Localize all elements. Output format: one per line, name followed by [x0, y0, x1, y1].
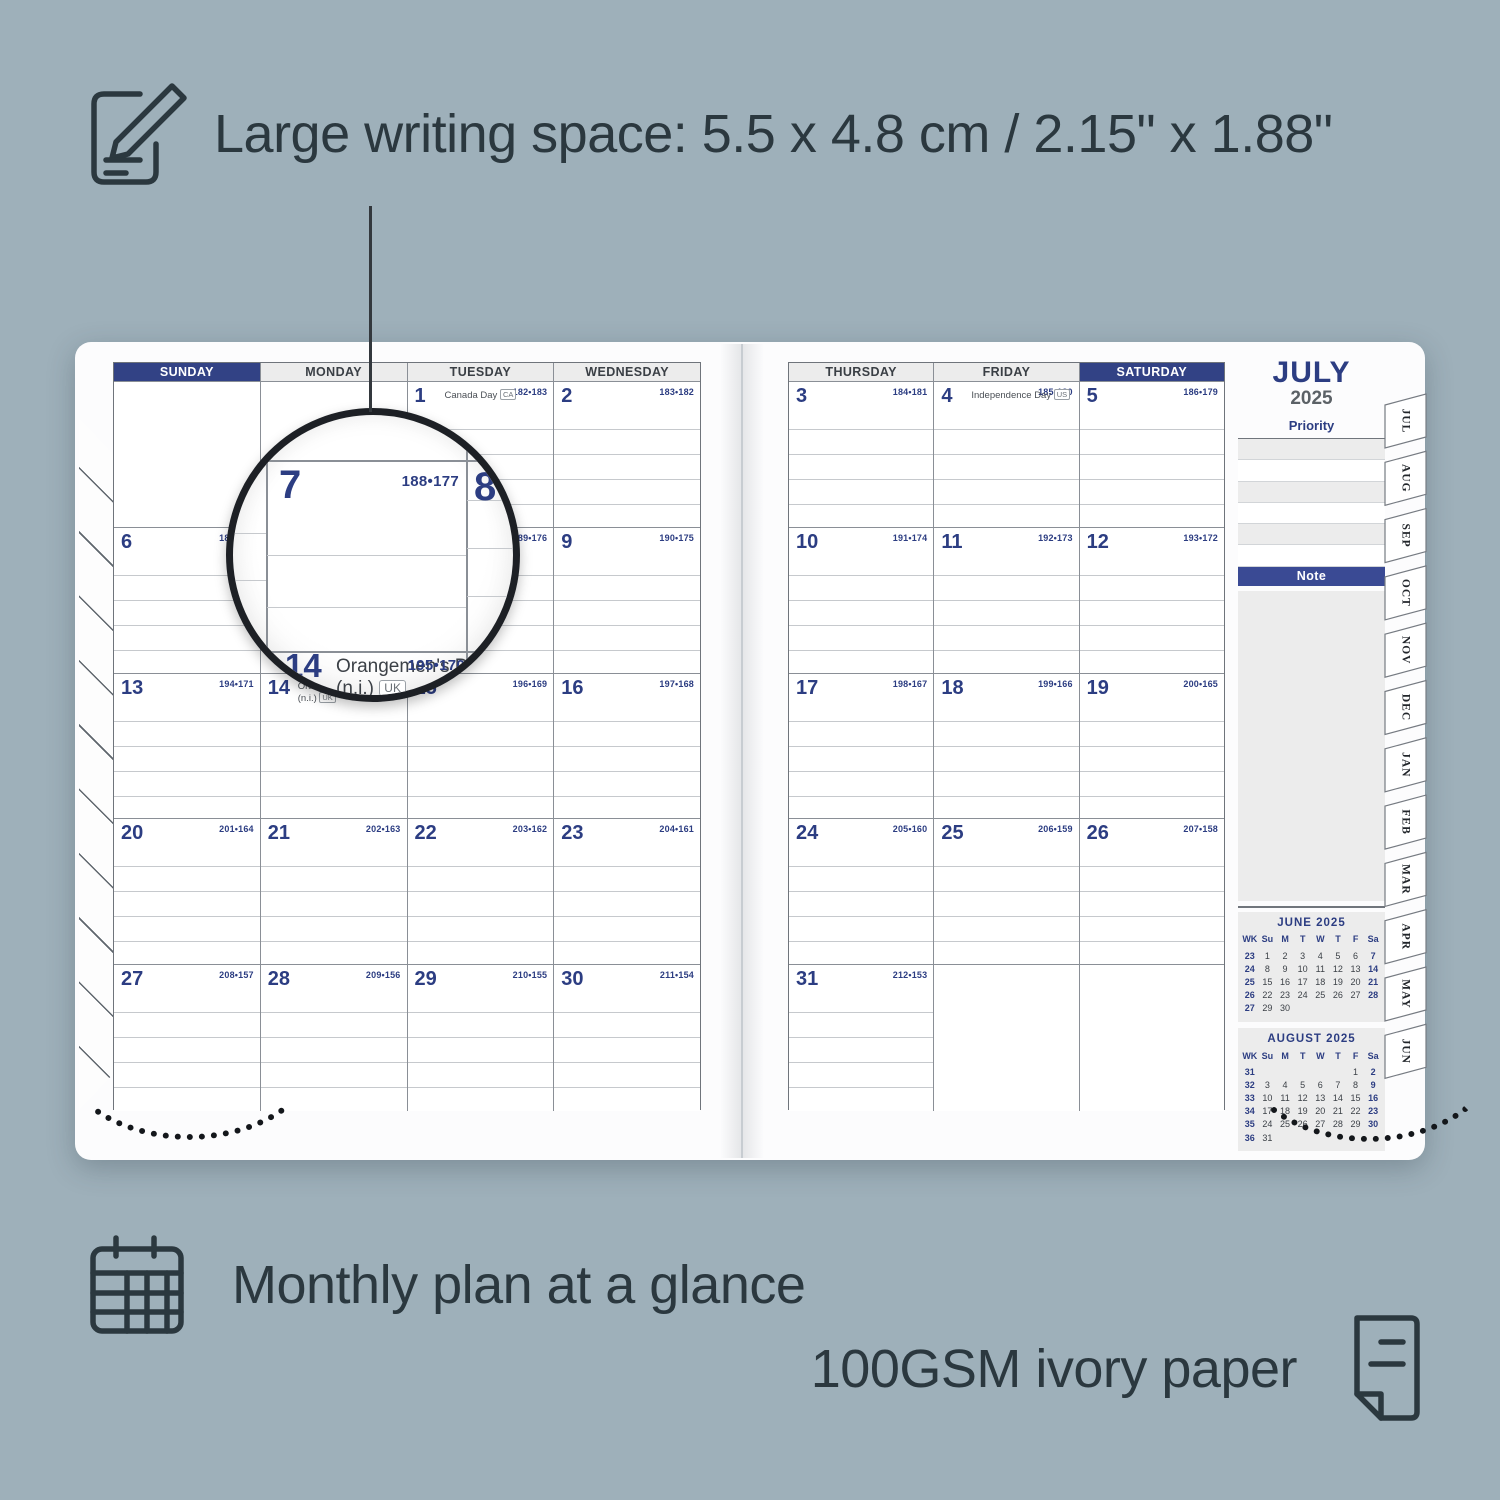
- day-of-year: 212•153: [893, 970, 928, 980]
- rule-line: [934, 429, 1078, 430]
- date-number: 24: [796, 822, 818, 845]
- rule-line: [114, 625, 260, 626]
- day-cell: 5186•179: [1080, 382, 1224, 527]
- rule-line: [789, 1087, 933, 1088]
- week-row: 20201•16421202•16322203•16223204•161: [114, 819, 700, 965]
- priority-line: [1238, 545, 1385, 566]
- mini-header-cell: Sa: [1364, 933, 1382, 946]
- grid-line: [233, 651, 513, 653]
- month-tab-label: DEC: [1399, 694, 1411, 721]
- calendar-grid-icon: [86, 1232, 188, 1338]
- day-cell: 2183•182: [554, 382, 700, 527]
- date-number: 4: [941, 385, 952, 408]
- rule-line: [934, 891, 1078, 892]
- magnified-date-14: 14: [285, 647, 322, 685]
- mini-header-cell: WK: [1241, 933, 1259, 946]
- rule-line: [789, 600, 933, 601]
- day-of-year: 199•166: [1038, 679, 1073, 689]
- stitch-decoration-right: [1238, 960, 1500, 1142]
- weekday-header: SUNDAY: [114, 363, 261, 381]
- rule-line: [934, 866, 1078, 867]
- country-badge: UK: [379, 680, 406, 696]
- week-number: 24: [1241, 962, 1259, 975]
- magnified-date-7: 7: [279, 463, 301, 508]
- rule-line: [934, 504, 1078, 505]
- rule-line: [789, 650, 933, 651]
- date-number: 2: [561, 385, 572, 408]
- rule-line: [114, 721, 260, 722]
- rule-line: [789, 916, 933, 917]
- rule-line: [554, 625, 700, 626]
- annotation-top: Large writing space: 5.5 x 4.8 cm / 2.15…: [88, 80, 1332, 188]
- date-number: 18: [941, 677, 963, 700]
- rule-line: [261, 721, 407, 722]
- rule-line: [554, 504, 700, 505]
- rule-line: [934, 650, 1078, 651]
- mini-calendar-title: JUNE 2025: [1241, 917, 1382, 929]
- week-row: 10191•17411192•17312193•172: [789, 528, 1224, 674]
- rule-line: [114, 796, 260, 797]
- rule-line: [554, 941, 700, 942]
- day-cell: 11192•173: [934, 528, 1079, 673]
- week-number: 36: [1241, 1131, 1259, 1144]
- date-number: 30: [561, 968, 583, 991]
- day-of-year: 202•163: [366, 824, 401, 834]
- day-cell: 4185•180Independence Day US: [934, 382, 1079, 527]
- rule-line: [554, 1037, 700, 1038]
- month-tab-label: JUL: [1399, 409, 1411, 434]
- rule-line: [408, 1062, 554, 1063]
- magnified-doy-14: 195•170: [408, 657, 465, 674]
- rule-line: [789, 429, 933, 430]
- date-number: 5: [1087, 385, 1098, 408]
- day-of-year: 186•179: [1183, 387, 1218, 397]
- day-cell: 24205•160: [789, 819, 934, 964]
- date-number: 3: [796, 385, 807, 408]
- rule-line: [267, 555, 466, 556]
- rule-line: [789, 625, 933, 626]
- note-header: Note: [1238, 567, 1385, 586]
- day-cell: 15196•169: [408, 674, 555, 819]
- month-tab-label: FEB: [1399, 809, 1411, 834]
- rule-line: [934, 625, 1078, 626]
- rule-line: [1080, 575, 1224, 576]
- mini-header-cell: T: [1294, 933, 1312, 946]
- rule-line: [789, 721, 933, 722]
- day-of-year: 206•159: [1038, 824, 1073, 834]
- day-cell: 18199•166: [934, 674, 1079, 819]
- date-number: 10: [796, 531, 818, 554]
- day-of-year: 205•160: [893, 824, 928, 834]
- date-number: 6: [121, 531, 132, 554]
- note-area: [1238, 591, 1385, 901]
- rule-line: [408, 916, 554, 917]
- day-of-year: 210•155: [513, 970, 548, 980]
- mini-header-cell: M: [1276, 933, 1294, 946]
- priority-line: [1238, 460, 1385, 481]
- weekday-header: SATURDAY: [1080, 363, 1224, 381]
- rule-line: [1080, 796, 1224, 797]
- week-number: 34: [1241, 1105, 1259, 1118]
- month-title: JULY: [1238, 356, 1385, 390]
- date-number: 31: [796, 968, 818, 991]
- day-of-year: 191•174: [893, 533, 928, 543]
- day-cell: 10191•174: [789, 528, 934, 673]
- day-cell: [1080, 965, 1224, 1111]
- day-of-year: 196•169: [513, 679, 548, 689]
- date-number: 12: [1087, 531, 1109, 554]
- rule-line: [934, 721, 1078, 722]
- day-of-year: 194•171: [219, 679, 254, 689]
- stitch-decoration-left: [58, 963, 320, 1140]
- rule-line: [554, 1012, 700, 1013]
- rule-line: [408, 796, 554, 797]
- day-cell: 20201•164: [114, 819, 261, 964]
- rule-line: [1080, 771, 1224, 772]
- day-cell: 23204•161: [554, 819, 700, 964]
- day-of-year: 192•173: [1038, 533, 1073, 543]
- rule-line: [467, 596, 513, 597]
- day-cell: 21202•163: [261, 819, 408, 964]
- rule-line: [789, 575, 933, 576]
- day-of-year: 201•164: [219, 824, 254, 834]
- rule-line: [554, 1062, 700, 1063]
- rule-line: [408, 771, 554, 772]
- weekday-header: TUESDAY: [408, 363, 555, 381]
- day-cell: 25206•159: [934, 819, 1079, 964]
- rule-line: [408, 1087, 554, 1088]
- priority-line: [1238, 524, 1385, 545]
- country-badge: CA: [500, 389, 516, 400]
- rule-line: [554, 746, 700, 747]
- rule-line: [554, 454, 700, 455]
- date-number: 9: [561, 531, 572, 554]
- month-tab-label: MAR: [1399, 864, 1411, 894]
- spine-line: [741, 344, 743, 1158]
- rule-line: [114, 771, 260, 772]
- rule-line: [233, 533, 266, 534]
- mini-header-cell: Su: [1259, 933, 1277, 946]
- weekday-header: FRIDAY: [934, 363, 1079, 381]
- day-cell: 19200•165: [1080, 674, 1224, 819]
- week-number: 23: [1241, 949, 1259, 962]
- day-of-year: 197•168: [659, 679, 694, 689]
- day-of-year: 211•154: [660, 970, 694, 980]
- rule-line: [261, 866, 407, 867]
- rule-line: [1080, 721, 1224, 722]
- date-number: 22: [415, 822, 437, 845]
- day-cell: 30211•154: [554, 965, 700, 1111]
- rule-line: [408, 891, 554, 892]
- rule-line: [789, 1062, 933, 1063]
- rule-line: [934, 941, 1078, 942]
- priority-line: [1238, 482, 1385, 503]
- rule-line: [408, 721, 554, 722]
- holiday-label: Independence Day US: [971, 389, 1070, 401]
- day-cell: 29210•155: [408, 965, 555, 1111]
- mini-header-cell: T: [1329, 933, 1347, 946]
- month-tab-label: OCT: [1399, 579, 1411, 607]
- rule-line: [408, 941, 554, 942]
- day-cell: 12193•172: [1080, 528, 1224, 673]
- day-of-year: 207•158: [1183, 824, 1218, 834]
- date-number: 23: [561, 822, 583, 845]
- magnified-doy-7: 188•177: [402, 473, 459, 490]
- magnifier-circle: 78 7 188•177 8 14 Orangemen's Day (n.i.)…: [226, 408, 520, 702]
- rule-line: [554, 650, 700, 651]
- rule-line: [408, 866, 554, 867]
- week-row: 17198•16718199•16619200•165: [789, 674, 1224, 820]
- divider: [1238, 906, 1385, 908]
- weekday-header: THURSDAY: [789, 363, 934, 381]
- paper-sheet-icon: [1335, 1312, 1427, 1426]
- day-of-year: 203•162: [513, 824, 548, 834]
- magnified-holiday-note: (n.i.) UK: [336, 678, 406, 700]
- rule-line: [789, 891, 933, 892]
- month-tab-label: JAN: [1399, 752, 1411, 777]
- date-number: 17: [796, 677, 818, 700]
- country-badge: US: [1054, 389, 1070, 400]
- mini-day: 9: [1276, 962, 1294, 975]
- rule-line: [1080, 600, 1224, 601]
- rule-line: [114, 941, 260, 942]
- rule-line: [1080, 429, 1224, 430]
- day-of-year: 190•175: [659, 533, 694, 543]
- mini-day: 4: [1312, 949, 1330, 962]
- rule-line: [267, 607, 466, 608]
- date-number: 13: [121, 677, 143, 700]
- rule-line: [408, 746, 554, 747]
- mini-header-cell: F: [1347, 933, 1365, 946]
- rule-line: [261, 796, 407, 797]
- mini-day: 5: [1329, 949, 1347, 962]
- rule-line: [554, 891, 700, 892]
- rule-line: [789, 454, 933, 455]
- date-number: 29: [415, 968, 437, 991]
- annotation-bottom-right-text: 100GSM ivory paper: [811, 1338, 1297, 1400]
- rule-line: [789, 1012, 933, 1013]
- annotation-bottom-right: 100GSM ivory paper: [811, 1312, 1427, 1426]
- annotation-top-text: Large writing space: 5.5 x 4.8 cm / 2.15…: [214, 103, 1332, 165]
- rule-line: [1080, 625, 1224, 626]
- month-tab-label: APR: [1399, 923, 1411, 950]
- ni-label: (n.i.): [336, 678, 374, 699]
- day-of-year: 184•181: [893, 387, 928, 397]
- weekday-header-row: SUNDAYMONDAYTUESDAYWEDNESDAY: [114, 363, 700, 382]
- grid-line: [466, 415, 468, 695]
- annotation-bottom-left-text: Monthly plan at a glance: [232, 1254, 805, 1316]
- mini-calendar-header: WKSuMTWTFSa: [1241, 933, 1382, 946]
- date-number: 25: [941, 822, 963, 845]
- rule-line: [1080, 504, 1224, 505]
- date-number: 16: [561, 677, 583, 700]
- rule-line: [554, 771, 700, 772]
- year-label: 2025: [1238, 388, 1385, 410]
- mini-day: 8: [1259, 962, 1277, 975]
- rule-line: [1080, 650, 1224, 651]
- rule-line: [934, 796, 1078, 797]
- priority-line: [1238, 503, 1385, 524]
- rule-line: [789, 479, 933, 480]
- rule-line: [1080, 941, 1224, 942]
- rule-line: [114, 746, 260, 747]
- rule-line: [1080, 479, 1224, 480]
- date-number: 20: [121, 822, 143, 845]
- mini-day: 24: [1259, 1118, 1277, 1131]
- date-number: 21: [268, 822, 290, 845]
- mini-day: 2: [1276, 949, 1294, 962]
- day-cell: 3184•181: [789, 382, 934, 527]
- day-of-year: 193•172: [1183, 533, 1218, 543]
- mini-day: 15: [1259, 975, 1277, 988]
- week-number: 26: [1241, 989, 1259, 1002]
- rule-line: [789, 796, 933, 797]
- date-number: 11: [941, 531, 962, 554]
- rule-line: [233, 580, 266, 581]
- day-cell: 17198•167: [789, 674, 934, 819]
- rule-line: [789, 941, 933, 942]
- rule-line: [554, 1087, 700, 1088]
- month-tab-label: AUG: [1399, 464, 1411, 493]
- day-cell: 13194•171: [114, 674, 261, 819]
- rule-line: [934, 479, 1078, 480]
- day-of-year: 209•156: [366, 970, 401, 980]
- rule-line: [554, 721, 700, 722]
- rule-line: [789, 771, 933, 772]
- rule-line: [554, 429, 700, 430]
- leader-line: [369, 206, 372, 412]
- day-cell: 22203•162: [408, 819, 555, 964]
- date-number: 19: [1087, 677, 1109, 700]
- week-number: 35: [1241, 1118, 1259, 1131]
- calendar-right-page: THURSDAYFRIDAYSATURDAY3184•1814185•180In…: [788, 362, 1225, 1110]
- rule-line: [934, 600, 1078, 601]
- grid-line: [233, 460, 513, 462]
- rule-line: [554, 575, 700, 576]
- rule-line: [1080, 866, 1224, 867]
- day-cell: 31212•153: [789, 965, 934, 1111]
- rule-line: [261, 891, 407, 892]
- rule-line: [554, 916, 700, 917]
- rule-line: [554, 479, 700, 480]
- rule-line: [554, 866, 700, 867]
- mini-day: [1276, 1131, 1294, 1144]
- rule-line: [114, 866, 260, 867]
- rule-line: [1080, 746, 1224, 747]
- day-of-year-fragment: 78: [235, 471, 249, 486]
- rule-line: [261, 771, 407, 772]
- day-of-year: 200•165: [1183, 679, 1218, 689]
- rule-line: [789, 1037, 933, 1038]
- week-row: 31212•153: [789, 965, 1224, 1111]
- weekday-header: WEDNESDAY: [554, 363, 700, 381]
- mini-day: 1: [1259, 949, 1277, 962]
- mini-day: [1294, 1131, 1312, 1144]
- day-cell: 26207•158: [1080, 819, 1224, 964]
- weekday-header-row: THURSDAYFRIDAYSATURDAY: [789, 363, 1224, 382]
- rule-line: [408, 1012, 554, 1013]
- mini-header-cell: W: [1312, 933, 1330, 946]
- day-cell: 16197•168: [554, 674, 700, 819]
- rule-line: [789, 866, 933, 867]
- holiday-label: Canada Day CA: [445, 389, 517, 401]
- notepad-pencil-icon: [88, 80, 188, 188]
- rule-line: [934, 916, 1078, 917]
- rule-line: [1080, 454, 1224, 455]
- day-cell: 9190•175: [554, 528, 700, 673]
- rule-line: [467, 548, 513, 549]
- rule-line: [554, 796, 700, 797]
- rule-line: [934, 771, 1078, 772]
- week-row: 3184•1814185•180Independence Day US5186•…: [789, 382, 1224, 528]
- day-of-year: 204•161: [659, 824, 694, 834]
- week-row: 24205•16025206•15926207•158: [789, 819, 1224, 965]
- rule-line: [261, 941, 407, 942]
- day-cell: [934, 965, 1079, 1111]
- rule-line: [789, 746, 933, 747]
- priority-lines: [1238, 438, 1385, 567]
- month-tab-label: NOV: [1399, 636, 1411, 665]
- week-number: 25: [1241, 975, 1259, 988]
- weekday-header: MONDAY: [261, 363, 408, 381]
- mini-day: 31: [1259, 1131, 1277, 1144]
- rule-line: [114, 916, 260, 917]
- rule-line: [114, 891, 260, 892]
- day-of-year: 198•167: [893, 679, 928, 689]
- rule-line: [934, 746, 1078, 747]
- month-tab-label: SEP: [1399, 524, 1411, 548]
- mini-day: 3: [1294, 949, 1312, 962]
- priority-label: Priority: [1238, 418, 1385, 433]
- annotation-bottom-left: Monthly plan at a glance: [86, 1232, 805, 1338]
- rule-line: [261, 916, 407, 917]
- day-of-year: 183•182: [659, 387, 694, 397]
- date-number: 1: [415, 385, 426, 408]
- rule-line: [1080, 916, 1224, 917]
- rule-line: [789, 504, 933, 505]
- priority-line: [1238, 439, 1385, 460]
- date-number: 26: [1087, 822, 1109, 845]
- rule-line: [408, 1037, 554, 1038]
- rule-line: [554, 600, 700, 601]
- rule-line: [934, 454, 1078, 455]
- rule-line: [934, 575, 1078, 576]
- day-of-year: 182•183: [513, 387, 548, 397]
- rule-line: [261, 746, 407, 747]
- rule-line: [1080, 891, 1224, 892]
- magnified-date-8: 8: [474, 465, 496, 510]
